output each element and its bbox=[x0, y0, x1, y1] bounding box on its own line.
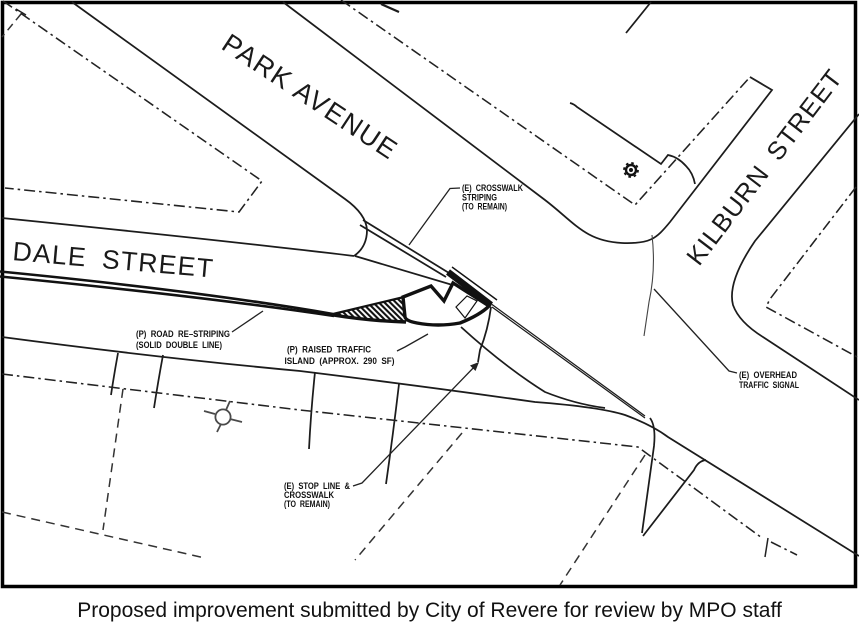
svg-text:TRAFFIC SIGNAL: TRAFFIC SIGNAL bbox=[739, 380, 799, 390]
svg-text:ISLAND (APPROX. 290 SF): ISLAND (APPROX. 290 SF) bbox=[285, 356, 395, 366]
svg-text:(TO REMAIN): (TO REMAIN) bbox=[284, 499, 330, 509]
svg-text:(SOLID DOUBLE LINE): (SOLID DOUBLE LINE) bbox=[136, 340, 222, 350]
svg-text:(TO REMAIN): (TO REMAIN) bbox=[462, 202, 507, 212]
svg-text:(P) RAISED TRAFFIC: (P) RAISED TRAFFIC bbox=[287, 345, 371, 355]
svg-text:(E) OVERHEAD: (E) OVERHEAD bbox=[739, 370, 797, 380]
svg-text:(P) ROAD RE–STRIPING: (P) ROAD RE–STRIPING bbox=[136, 329, 230, 339]
